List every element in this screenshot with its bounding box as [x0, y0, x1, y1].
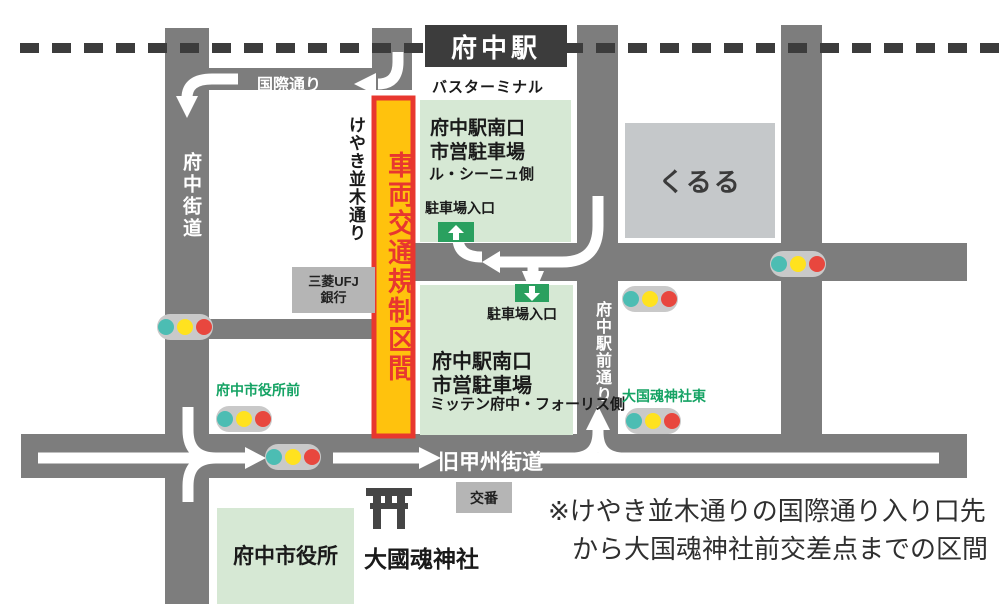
yellow-lamp-icon [642, 291, 658, 307]
parking-south-side: ミッテン府中・フォーリス側 [430, 393, 625, 414]
yellow-lamp-icon [177, 319, 193, 335]
red-lamp-icon [255, 411, 271, 427]
down-arrow-icon [524, 286, 540, 301]
yellow-lamp-icon [285, 449, 301, 465]
shrine-label: 大國魂神社 [364, 540, 479, 574]
signal-label-city-hall-front: 府中市役所前 [216, 380, 300, 400]
traffic-light-east-crossing [770, 251, 826, 277]
parking-north-box: 府中駅南口 市営駐車場 ル・シーニュ側 駐車場入口 [420, 100, 571, 242]
red-lamp-icon [304, 449, 320, 465]
green-lamp-icon [623, 291, 639, 307]
station-label: 府中駅 [451, 28, 541, 65]
parking-north-entrance-marker [438, 222, 474, 242]
note-line1: ※けやき並木通りの国際通り入り口先 [548, 492, 988, 530]
parking-south-entrance-label: 駐車場入口 [487, 304, 557, 324]
parking-north-name2: 市営駐車場 [430, 137, 525, 164]
road-label-kokusai-dori: 国際通り [257, 71, 321, 95]
kururu-label: くるる [658, 162, 741, 199]
green-lamp-icon [626, 413, 642, 429]
bank-label-line2: 銀行 [308, 290, 359, 306]
traffic-light-city-hall-front [216, 406, 272, 432]
road-label-keyaki-namiki-dori: けやき並木通り [343, 116, 368, 242]
city-hall-box: 府中市役所 [217, 508, 354, 604]
route-map-canvas: 府中駅 バスターミナル 府中街道 国際通り けやき並木通り 府中駅前通り 旧甲州… [0, 0, 1005, 604]
red-lamp-icon [664, 413, 680, 429]
road-east-vertical [781, 25, 822, 437]
parking-north-side: ル・シーニュ側 [429, 163, 534, 184]
restricted-zone-label: 車両交通規制区間 [380, 151, 419, 383]
parking-south-entrance-marker [515, 284, 549, 302]
koban-label: 交番 [470, 488, 498, 508]
up-arrow-icon [448, 225, 464, 240]
road-label-fuchu-kaido: 府中街道 [177, 152, 204, 240]
red-lamp-icon [196, 319, 212, 335]
road-label-fuchu-ekimae-dori: 府中駅前通り [589, 301, 613, 403]
regulation-note: ※けやき並木通りの国際通り入り口先 から大国魂神社前交差点までの区間 [548, 492, 988, 568]
signal-label-okunitama-east: 大国魂神社東 [622, 386, 706, 406]
road-label-kyu-koshu-kaido: 旧甲州街道 [438, 446, 543, 476]
traffic-light-koshu-kaido [265, 444, 321, 470]
bank-box: 三菱UFJ 銀行 [292, 267, 375, 313]
bus-terminal-label: バスターミナル [432, 76, 544, 97]
road-bank-connector [187, 319, 372, 339]
yellow-lamp-icon [236, 411, 252, 427]
traffic-light-parking-road [622, 286, 678, 312]
green-lamp-icon [158, 319, 174, 335]
yellow-lamp-icon [790, 256, 806, 272]
red-lamp-icon [661, 291, 677, 307]
station-box: 府中駅 [425, 25, 567, 67]
koban-box: 交番 [456, 482, 512, 513]
parking-north-name1: 府中駅南口 [430, 113, 525, 140]
green-lamp-icon [266, 449, 282, 465]
torii-icon [366, 488, 412, 529]
yellow-lamp-icon [645, 413, 661, 429]
traffic-light-bank-corner [157, 314, 213, 340]
bank-label-line1: 三菱UFJ [308, 274, 359, 290]
parking-north-entrance-label: 駐車場入口 [425, 198, 495, 218]
red-lamp-icon [809, 256, 825, 272]
note-line2: から大国魂神社前交差点までの区間 [572, 530, 988, 568]
green-lamp-icon [217, 411, 233, 427]
kururu-building: くるる [625, 123, 775, 238]
green-lamp-icon [771, 256, 787, 272]
city-hall-label: 府中市役所 [217, 540, 354, 570]
parking-south-box: 駐車場入口 府中駅南口 市営駐車場 ミッテン府中・フォーリス側 [420, 285, 573, 435]
traffic-light-okunitama-east [625, 408, 681, 434]
